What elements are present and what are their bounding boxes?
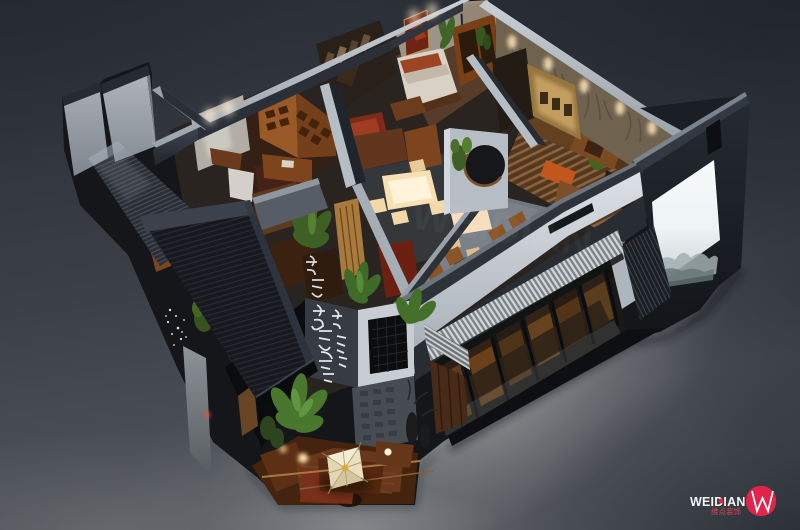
svg-text:维点装饰: 维点装饰 [711,506,741,516]
